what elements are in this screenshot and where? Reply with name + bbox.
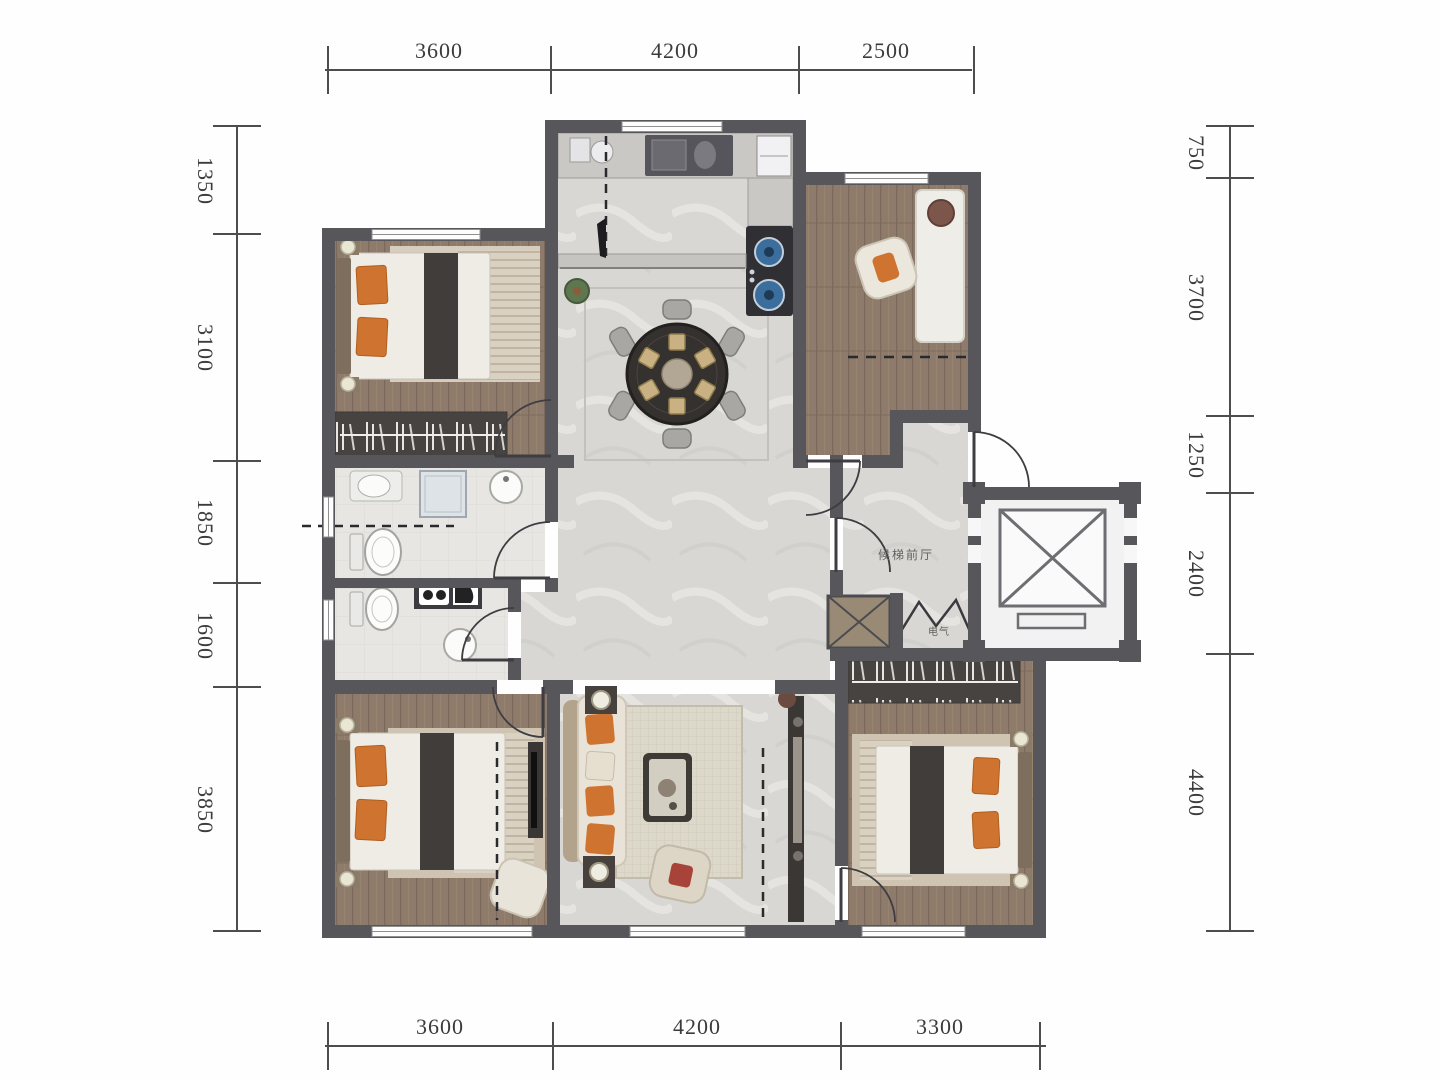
dim-bottom-1: 3600 bbox=[395, 1014, 485, 1040]
bedroom3 bbox=[848, 661, 1032, 889]
window bbox=[324, 497, 334, 537]
bed-runner bbox=[420, 733, 454, 870]
pillow bbox=[355, 745, 387, 787]
lamp-icon bbox=[590, 863, 608, 881]
coffee-table bbox=[643, 753, 692, 822]
dim-right-5: 4400 bbox=[1183, 748, 1209, 838]
dim-top-1: 3600 bbox=[394, 38, 484, 64]
hallway-floor bbox=[558, 468, 830, 680]
window bbox=[372, 927, 532, 937]
dim-bottom-2: 4200 bbox=[652, 1014, 742, 1040]
toilet-icon bbox=[350, 588, 398, 630]
headboard bbox=[337, 258, 351, 374]
stove bbox=[746, 226, 793, 316]
kitchen-peninsula bbox=[558, 254, 746, 268]
armchair bbox=[647, 843, 713, 906]
pillow bbox=[356, 265, 388, 305]
table-centerpiece bbox=[662, 359, 692, 389]
sink-icon bbox=[358, 475, 390, 497]
dim-left-2: 3100 bbox=[192, 303, 218, 393]
bedroom3-door-alcove bbox=[800, 855, 835, 925]
bed-runner bbox=[424, 253, 458, 379]
basin-icon bbox=[444, 629, 476, 661]
window bbox=[630, 927, 745, 937]
bed-runner bbox=[910, 746, 944, 874]
bath-nook-floor bbox=[521, 592, 558, 680]
sofa bbox=[563, 696, 626, 866]
lamp-icon bbox=[340, 718, 354, 732]
pillow bbox=[972, 757, 1000, 794]
dim-top-3: 2500 bbox=[841, 38, 931, 64]
pillow bbox=[355, 799, 387, 841]
electrical-label: 电气 bbox=[909, 623, 969, 638]
tv-icon bbox=[531, 752, 537, 828]
dim-top-2: 4200 bbox=[630, 38, 720, 64]
pillow bbox=[356, 317, 388, 357]
dim-left-1: 1350 bbox=[192, 136, 218, 226]
tv-icon bbox=[793, 737, 802, 843]
lamp-icon bbox=[341, 377, 355, 391]
toilet-icon bbox=[350, 529, 401, 575]
dim-right-1: 750 bbox=[1183, 108, 1209, 198]
headboard bbox=[336, 740, 350, 862]
plant-icon bbox=[928, 200, 954, 226]
dim-right-2: 3700 bbox=[1183, 253, 1209, 343]
elevator-lobby-label: 候梯前厅 bbox=[851, 546, 961, 563]
dim-left-5: 3850 bbox=[192, 765, 218, 855]
entry-nook-floor bbox=[903, 423, 968, 468]
basin-icon bbox=[490, 471, 522, 503]
dim-right-4: 2400 bbox=[1183, 529, 1209, 619]
window bbox=[324, 600, 334, 640]
shower bbox=[420, 471, 466, 517]
lamp-icon bbox=[341, 240, 355, 254]
window bbox=[622, 122, 722, 132]
window bbox=[845, 174, 928, 184]
pillow bbox=[972, 811, 1000, 848]
dim-right-3: 1250 bbox=[1183, 410, 1209, 500]
lamp-icon bbox=[592, 691, 610, 709]
kitchen-basin bbox=[591, 141, 613, 163]
dim-bottom-3: 3300 bbox=[895, 1014, 985, 1040]
lamp-icon bbox=[340, 872, 354, 886]
plant-icon bbox=[565, 279, 589, 303]
dim-left-4: 1600 bbox=[192, 591, 218, 681]
floorplan-image: 3600 4200 2500 3600 4200 3300 1350 3100 … bbox=[0, 0, 1440, 1080]
headboard bbox=[1018, 752, 1032, 868]
dim-left-3: 1850 bbox=[192, 478, 218, 568]
lamp-icon bbox=[1014, 732, 1028, 746]
window bbox=[862, 927, 965, 937]
lamp-icon bbox=[1014, 874, 1028, 888]
window bbox=[372, 230, 480, 240]
door-entry bbox=[974, 432, 1029, 487]
